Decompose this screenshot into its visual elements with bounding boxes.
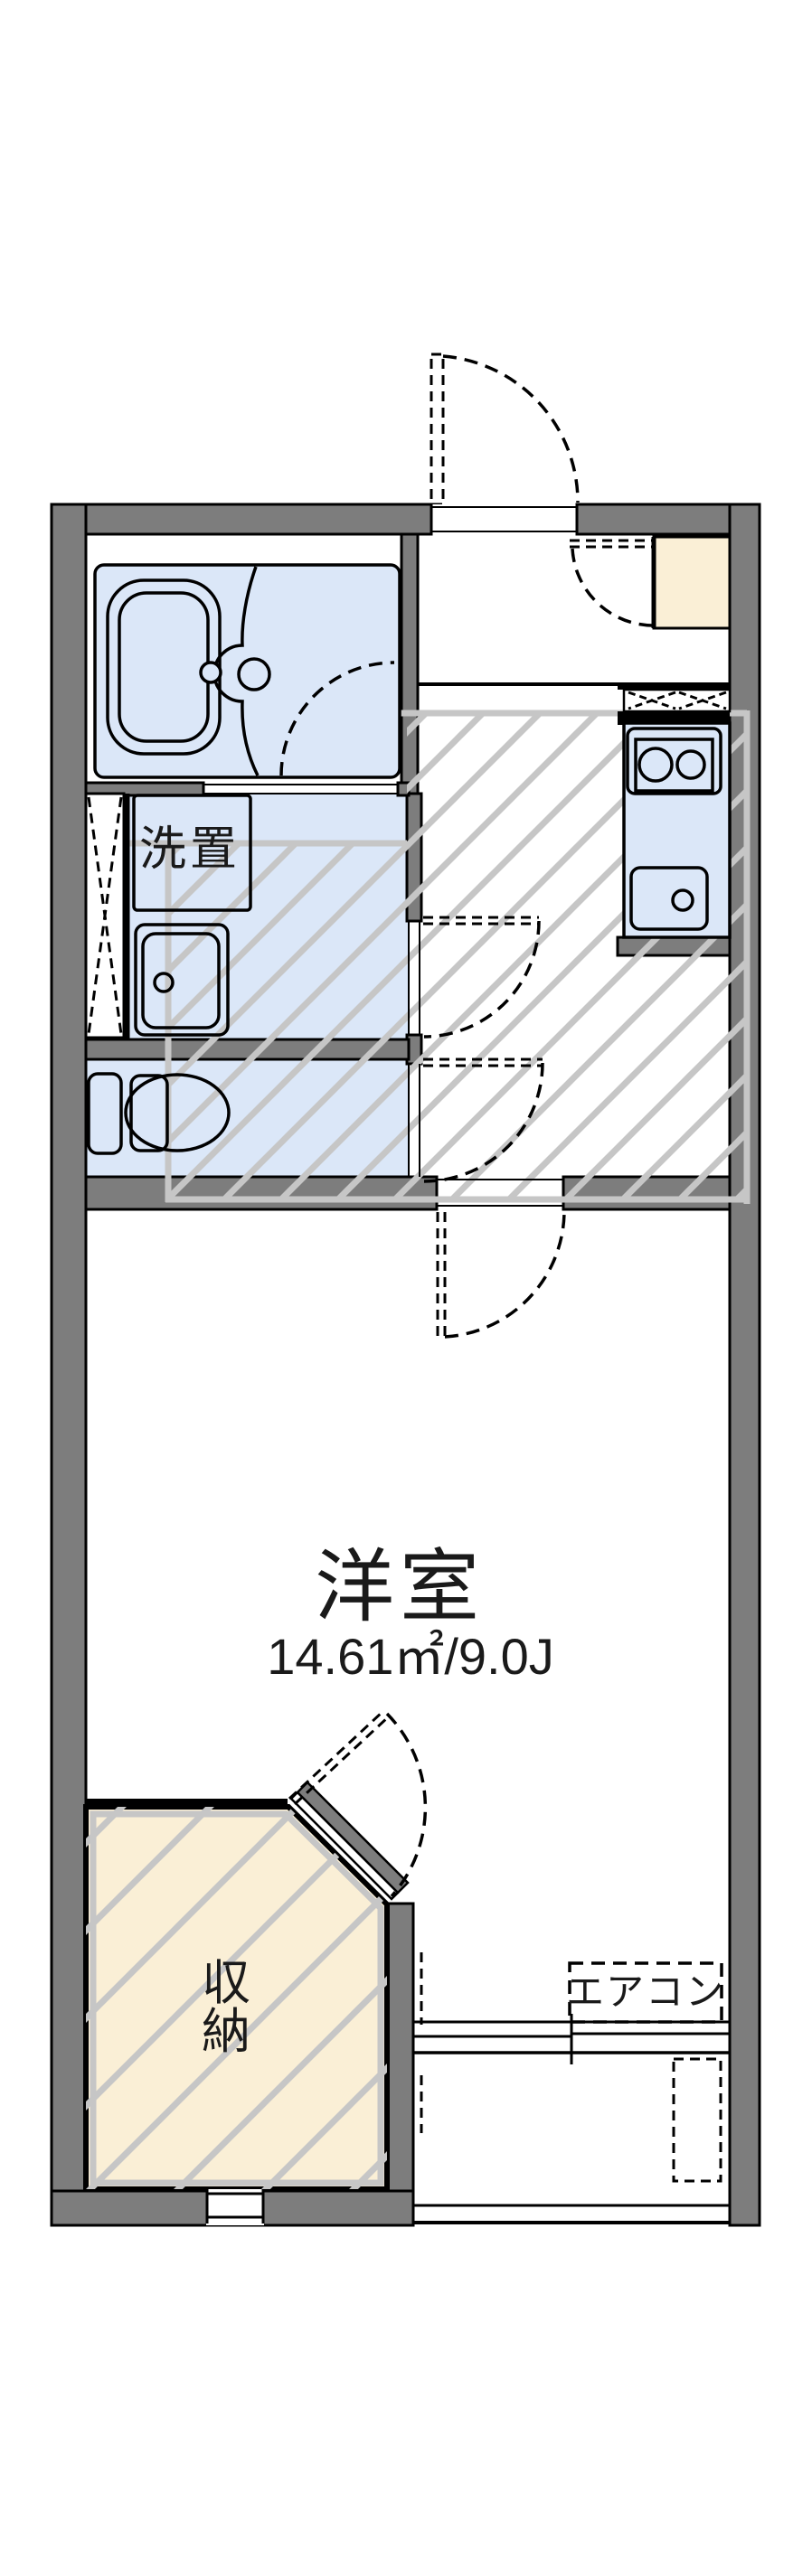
kitchen xyxy=(618,717,730,937)
room-label: 洋室 xyxy=(315,1542,485,1631)
floorplan-page: 洗置 洋室 14.61㎡/9.0J 収 納 エアコン xyxy=(0,0,812,2576)
entrance-door-swing-arc xyxy=(443,356,578,503)
entrance-door xyxy=(431,354,578,504)
closet-label-line1: 収 xyxy=(202,1956,250,2010)
entrance-door-leaf xyxy=(431,354,443,504)
kitchen-window xyxy=(618,682,730,719)
floorplan-drawing: 洗置 洋室 14.61㎡/9.0J 収 納 エアコン xyxy=(0,0,812,2576)
wall-top-left xyxy=(52,504,431,534)
wall-closet-right xyxy=(387,1904,413,2225)
kitchen-window-glass xyxy=(624,690,730,711)
bath-drain xyxy=(201,663,221,682)
wall-left xyxy=(52,504,86,2225)
room-size-label: 14.61㎡/9.0J xyxy=(267,1628,554,1685)
aircon-label: エアコン xyxy=(566,1970,725,2013)
shoe-box xyxy=(654,537,730,628)
closet-top-wall xyxy=(86,1799,288,1807)
bathroom xyxy=(95,565,400,777)
laundry-label: 洗置 xyxy=(139,823,241,876)
bath-faucet xyxy=(239,659,269,690)
closet-label-line2: 納 xyxy=(202,2005,250,2059)
